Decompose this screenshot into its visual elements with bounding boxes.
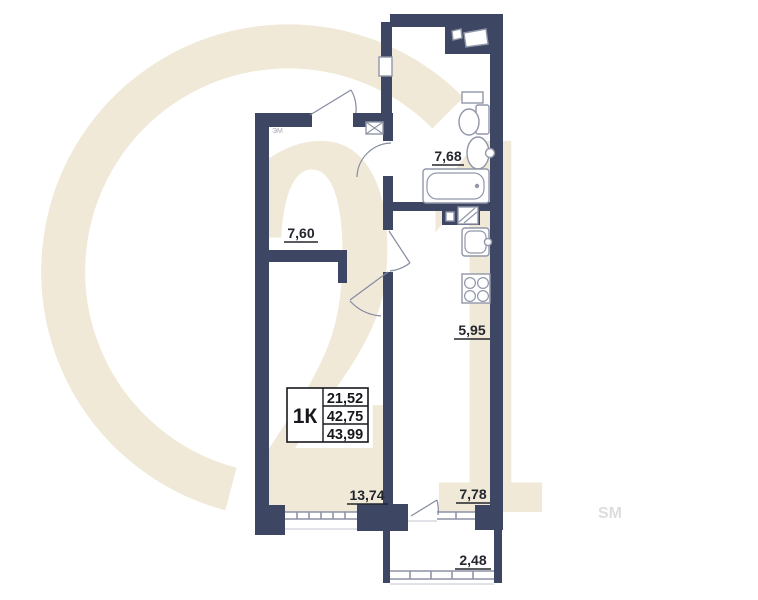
wall-living-bottom-left	[255, 505, 285, 535]
bathtub-drain	[475, 184, 479, 188]
unit-area-value: 42,75	[327, 409, 363, 425]
electrical-panel	[366, 122, 383, 134]
room-area-kitchen-niche: 5,95	[458, 322, 485, 338]
kitchen-sink-faucet	[484, 238, 491, 245]
wall-corridor-c	[383, 272, 393, 510]
wall-hallway-divider	[255, 250, 347, 262]
wall-right-outer	[490, 14, 503, 530]
wall-toproom-left-lower	[381, 76, 392, 115]
bathroom-shelf	[462, 92, 483, 103]
room-area-hallway: 7,60	[287, 225, 314, 241]
unit-info-box: 1К 21,52 42,75 43,99	[287, 388, 368, 443]
bathroom-sink-faucet	[486, 149, 495, 158]
wall-top	[390, 14, 502, 27]
toproom-wall-slot	[379, 57, 392, 76]
washing-machine-icon	[464, 29, 488, 47]
wall-living-bottom-mid	[357, 504, 408, 531]
wall-hallway-divider-stub	[338, 262, 347, 283]
room-area-kitchen-room: 7,78	[459, 486, 486, 502]
unit-living-area-value: 21,52	[327, 391, 363, 407]
room-area-living: 13,74	[349, 487, 384, 503]
wall-corridor-a	[383, 127, 393, 141]
wall-left-outer	[255, 113, 269, 535]
room-area-balcony: 2,48	[459, 552, 486, 568]
kitchen-washer-icon	[458, 207, 478, 224]
sm-watermark-text: SM	[598, 505, 622, 522]
toilet-bowl-icon	[459, 109, 479, 135]
floor-plan-page: 21	[0, 0, 758, 600]
room-area-bathroom: 7,68	[434, 148, 461, 164]
kitchen-small-box	[446, 212, 454, 221]
wall-right-lower-thin	[494, 525, 502, 583]
unit-total-area-value: 43,99	[327, 427, 363, 443]
unit-type-label: 1К	[293, 405, 318, 428]
wall-toproom-left-upper	[381, 22, 392, 57]
wall-balcony-left	[383, 525, 390, 583]
floor-plan-image: 21	[0, 0, 758, 600]
boiler-icon	[452, 29, 462, 40]
electrical-panel-label: ЭМ	[272, 128, 283, 135]
wall-kitchen-bottom-right	[475, 505, 495, 530]
